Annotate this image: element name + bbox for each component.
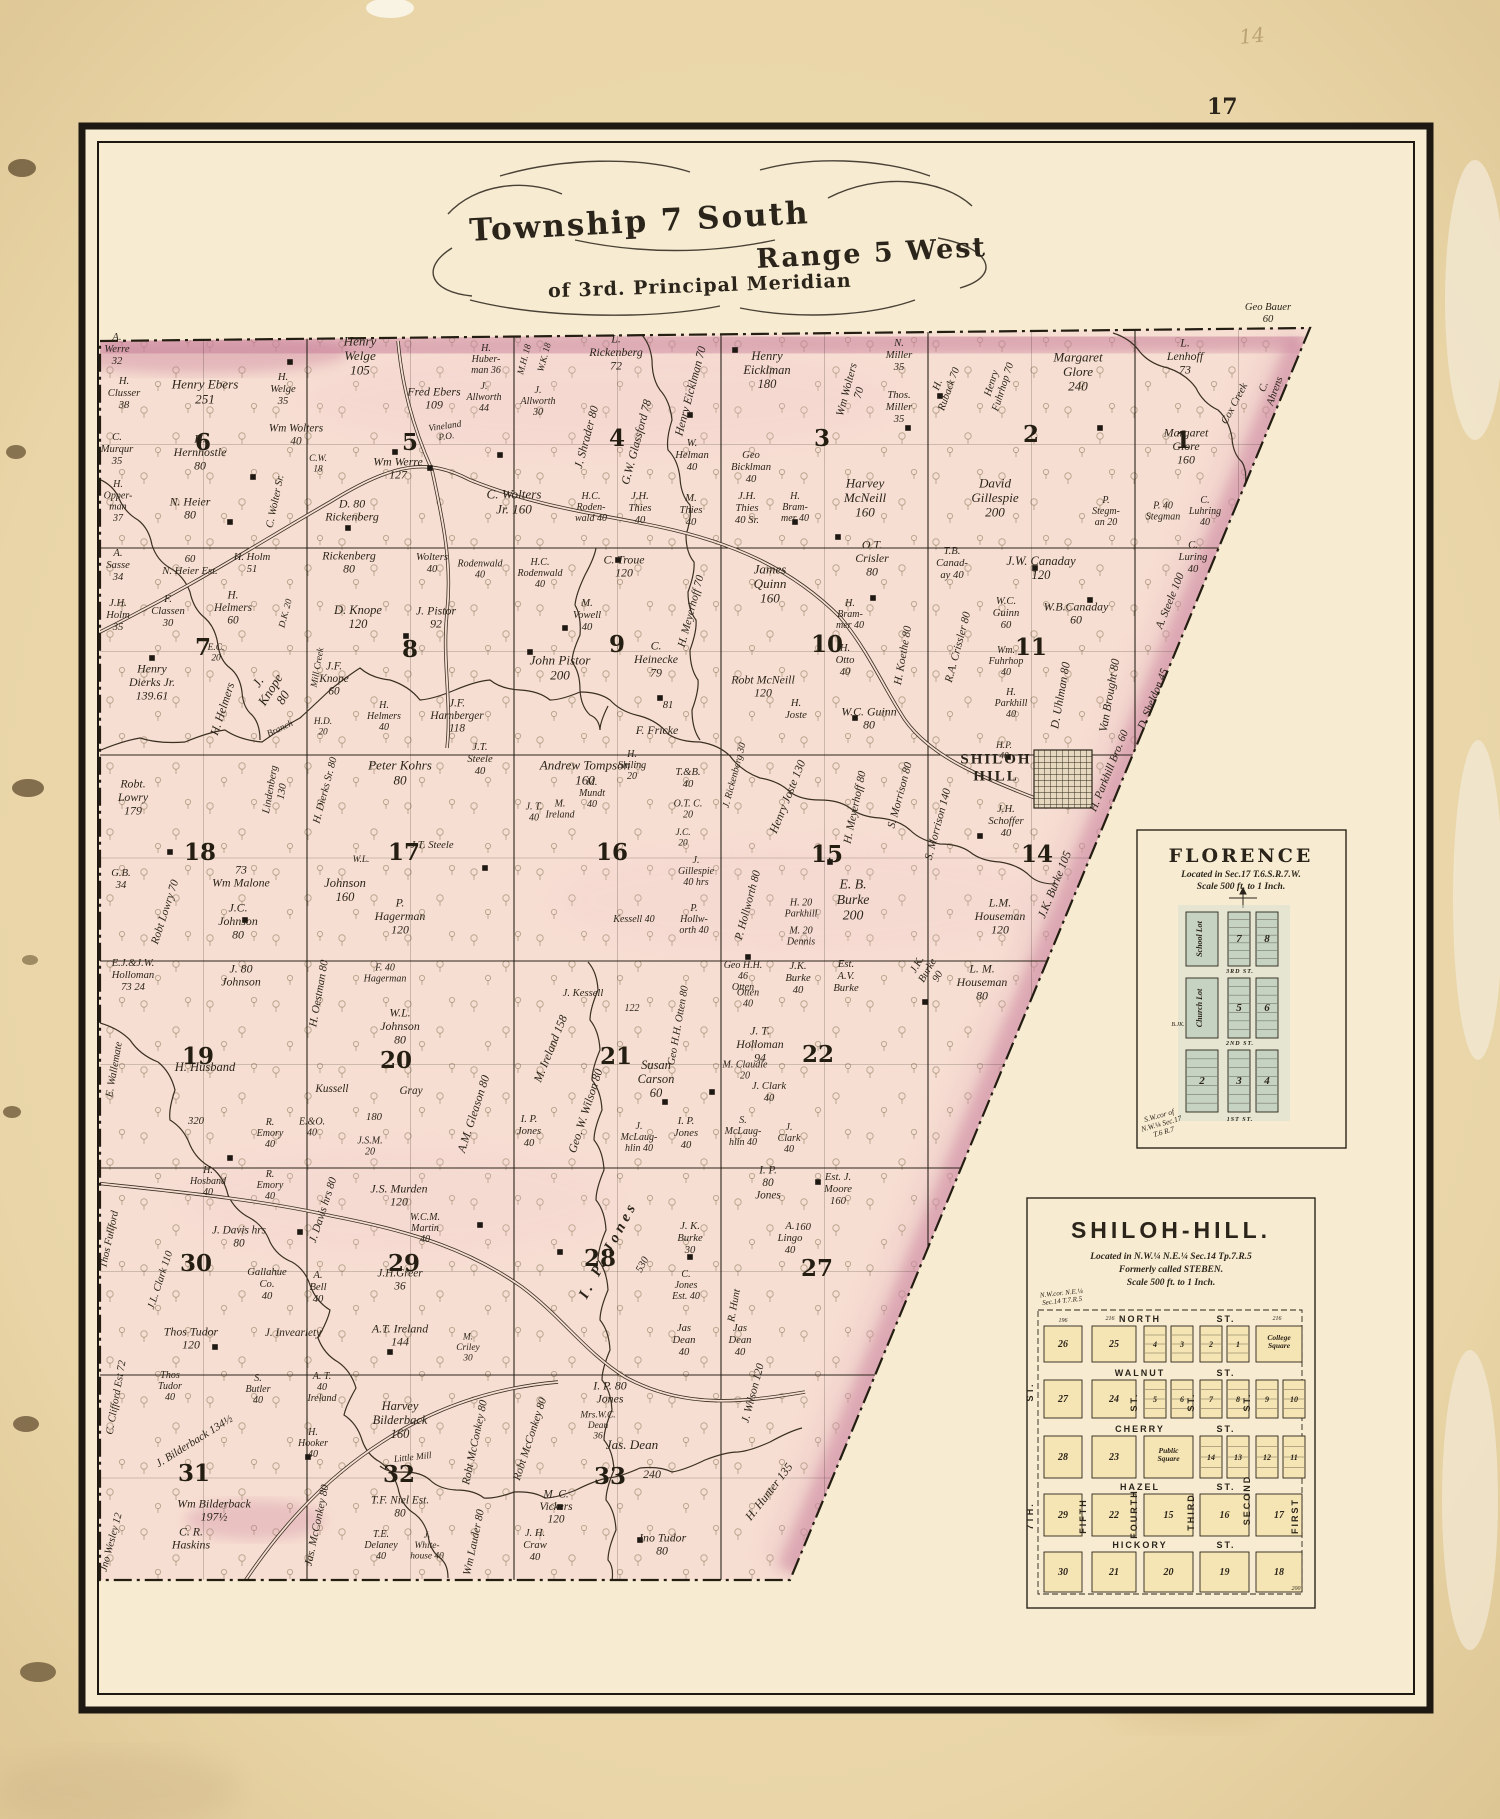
atlas-scan: 17 14 Township 7 South Range 5 West of 3… [0,0,1500,1819]
shiloh-block-label: 2 [1208,1340,1213,1349]
house-marker [732,347,738,353]
house-marker [345,525,351,531]
shiloh-block-label: 23 [1108,1452,1119,1463]
shiloh-block-label: 28 [1057,1452,1068,1463]
shiloh-block-label: 6 [1180,1395,1184,1404]
section-number: 20 [380,1047,412,1074]
house-marker [387,1349,393,1355]
section-number: 5 [402,429,418,456]
shiloh-street-label: ST. [1216,1368,1235,1378]
landowner-label: 320 [187,1116,205,1127]
shiloh-street-label: NORTH [1119,1314,1161,1324]
shiloh-street-label: WALNUT [1115,1368,1166,1378]
florence-street-label: 3RD ST. [1225,969,1254,975]
shiloh-street-label: FIRST [1290,1498,1300,1534]
section-number: 16 [596,839,628,866]
shiloh-block-label: 15 [1164,1510,1174,1521]
section-number: 1 [1175,427,1191,454]
house-marker [287,359,293,365]
house-marker [870,595,876,601]
florence-block-label: 8 [1264,933,1270,945]
section-number: 19 [182,1043,214,1070]
florence-location: Located in Sec.17 T.6.S.R.7.W. [1180,870,1301,880]
section-number: 29 [388,1250,420,1277]
section-number: 31 [178,1460,210,1487]
florence-scale: Scale 500 ft. to 1 Inch. [1197,882,1285,892]
shiloh-block-label: 27 [1057,1394,1069,1405]
shiloh-block-label: 17 [1274,1510,1285,1521]
landowner-label: I. P. 80Jones [592,1378,626,1405]
florence-inset: FLORENCE Located in Sec.17 T.6.S.R.7.W. … [1137,830,1346,1148]
shiloh-block-label: 20 [1163,1567,1174,1578]
section-number: 17 [388,839,420,866]
house-marker [662,1099,668,1105]
pencil-note: 14 [1238,22,1266,49]
landowner-label: J.H.Thies40 Sr. [735,491,759,526]
house-marker [905,425,911,431]
section-number: 28 [584,1245,616,1272]
shiloh-street-label: ST. [1186,1392,1196,1411]
shiloh-block-label: 14 [1207,1453,1215,1462]
landowner-label: Gray [399,1085,422,1097]
shiloh-street-label: ST. [1216,1540,1235,1550]
shiloh-street-label: FOURTH [1129,1489,1139,1539]
shiloh-street-label: CHERRY [1115,1424,1165,1434]
house-marker [212,1344,218,1350]
house-marker [557,1249,563,1255]
shiloh-block-label: 19 [1220,1567,1230,1578]
florence-street-label: 1ST ST. [1227,1117,1253,1123]
shiloh-block-label: 10 [1290,1395,1298,1404]
house-marker [977,833,983,839]
house-marker [1097,425,1103,431]
section-number: 4 [609,425,625,452]
florence-block-label: 3 [1235,1075,1242,1087]
house-marker [227,519,233,525]
shiloh-formerly: Formerly called STEBEN. [1118,1265,1223,1275]
section-number: 21 [600,1043,632,1070]
landowner-label: 180 [366,1112,383,1123]
house-marker [167,849,173,855]
landowner-label: 240 [643,1467,661,1481]
house-marker [922,999,928,1005]
landowner-label: F. Fricke [635,723,679,737]
florence-block-label: 6 [1264,1002,1270,1014]
shiloh-dim-label: 200 [1292,1586,1301,1592]
florence-block-label: 7 [1236,933,1242,945]
landowner-label: 122 [625,1003,640,1014]
section-number: 15 [811,841,843,868]
landowner-label: Kessell 40 [612,914,654,925]
section-number: 2 [1023,421,1039,448]
shiloh-block-label: 8 [1236,1395,1240,1404]
section-number: 14 [1021,841,1053,868]
shiloh-title: SHILOH-HILL. [1071,1217,1271,1243]
section-number: 8 [402,636,418,663]
florence-title: FLORENCE [1169,845,1314,867]
section-number: 9 [609,631,625,658]
section-number: 22 [802,1041,834,1068]
shiloh-block-label: 25 [1108,1339,1119,1350]
section-number: 32 [383,1461,415,1488]
shiloh-block-label: 30 [1057,1567,1068,1578]
shiloh-street-label: HICKORY [1112,1540,1167,1550]
shiloh-location: Located in N.W.¼ N.E.¼ Sec.14 Tp.7.R.5 [1089,1251,1252,1262]
section-number: 7 [195,634,211,661]
shiloh-block-label: 3 [1179,1340,1184,1349]
shiloh-scale: Scale 500 ft. to 1 Inch. [1127,1278,1215,1288]
florence-block-label: School Lot [1195,920,1204,957]
house-marker [477,1222,483,1228]
house-marker [835,534,841,540]
page-number: 17 [1207,94,1238,120]
section-number: 3 [814,425,830,452]
section-number: 11 [1015,634,1047,661]
landowner-label: M. 20Dennis [786,925,815,947]
shiloh-street-label: ST. [1216,1314,1235,1324]
shiloh-block-label: 13 [1234,1453,1242,1462]
shiloh-block-label: 22 [1108,1510,1119,1521]
house-marker [250,474,256,480]
shiloh-dim-label: 196 [1059,1318,1068,1324]
landowner-label: 81 [663,700,674,711]
house-marker [815,1179,821,1185]
shiloh-street-label: HAZEL [1120,1482,1160,1492]
shiloh-street-label: ST. [1242,1392,1252,1411]
atlas-page: 17 14 Township 7 South Range 5 West of 3… [0,0,1500,1819]
house-marker [297,1229,303,1235]
house-marker [497,452,503,458]
shiloh-block-label: 4 [1152,1340,1157,1349]
shiloh-street-label: ST. [1216,1482,1235,1492]
shiloh-hill-town-plat [1034,750,1092,808]
landowner-label: 160 [795,1222,812,1233]
section-number: 6 [195,429,211,456]
shiloh-block-label: 5 [1153,1395,1157,1404]
section-number: 18 [184,839,216,866]
shiloh-inset: SHILOH-HILL. Located in N.W.¼ N.E.¼ Sec.… [1025,1198,1315,1608]
shiloh-block-label: CollegeSquare [1267,1333,1291,1350]
house-marker [227,1155,233,1161]
shiloh-street-label: ST. [1216,1424,1235,1434]
florence-block-label: Church Lot [1195,988,1204,1027]
shiloh-dim-label: 216 [1273,1316,1282,1322]
landowner-label: W.L. [353,855,370,865]
florence-block-label: 5 [1236,1002,1242,1014]
shiloh-block-label: 11 [1290,1453,1298,1462]
shiloh-block-label: 29 [1057,1510,1068,1521]
section-number: 33 [594,1463,626,1490]
shiloh-block-label: 1 [1236,1340,1240,1349]
shiloh-block-label: 24 [1108,1394,1119,1405]
section-number: 10 [811,631,843,658]
shiloh-block-label: PublicSquare [1157,1446,1180,1463]
shiloh-block-label: 21 [1108,1567,1119,1578]
shiloh-street-label: ST. [1025,1382,1035,1401]
shiloh-block-label: 16 [1220,1510,1230,1521]
florence-block-label: 4 [1263,1075,1270,1087]
shiloh-block-label: 12 [1263,1453,1271,1462]
shiloh-block-label: 18 [1274,1567,1284,1578]
florence-block-label: 2 [1198,1075,1205,1087]
house-marker [709,1089,715,1095]
landowner-label: Kussell [314,1083,348,1095]
house-marker [482,865,488,871]
shiloh-street-label: ST. [1129,1392,1139,1411]
shiloh-street-label: THIRD [1186,1493,1196,1531]
florence-street-label: 2ND ST. [1225,1041,1254,1047]
shiloh-block-label: 26 [1057,1339,1068,1350]
shiloh-street-label: 7TH. [1025,1502,1035,1530]
house-marker [562,625,568,631]
section-number: 27 [801,1255,833,1282]
section-number: 30 [180,1250,212,1277]
florence-blk-note: B.JK. [1171,1022,1184,1028]
landowner-label: J. Inveariety [265,1327,321,1339]
house-marker [149,655,155,661]
house-marker [427,465,433,471]
landowner-label: J. Kessell [563,988,604,999]
shiloh-street-label: SECOND [1242,1475,1252,1526]
landowner-label: Jas. Dean [606,1437,659,1452]
shiloh-block-label: 9 [1265,1395,1269,1404]
shiloh-dim-label: 216 [1106,1316,1115,1322]
shiloh-street-label: FIFTH [1078,1498,1088,1534]
